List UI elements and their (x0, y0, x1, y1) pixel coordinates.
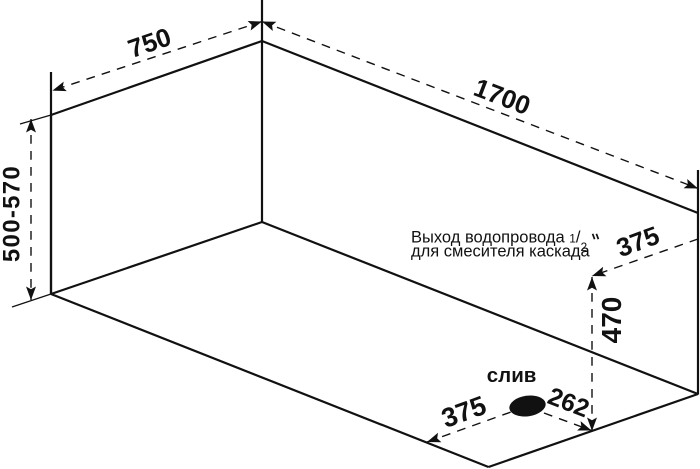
svg-text:слив: слив (487, 364, 537, 387)
svg-text:470: 470 (596, 297, 627, 344)
svg-text:500-570: 500-570 (0, 165, 25, 262)
svg-text:для смесителя каскада: для смесителя каскада (411, 243, 591, 261)
